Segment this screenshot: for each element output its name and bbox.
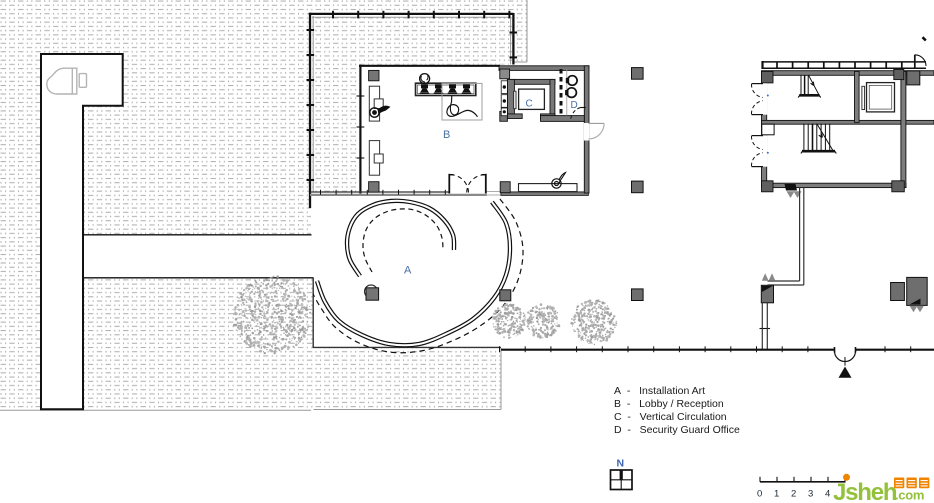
svg-text:A: A	[404, 265, 412, 277]
svg-text:D - Security Guard Office: D - Security Guard Office	[614, 424, 740, 436]
svg-text:4: 4	[825, 489, 830, 500]
svg-text:1: 1	[774, 489, 779, 500]
svg-text:0: 0	[757, 489, 762, 500]
svg-text:B - Lobby / Reception: B - Lobby / Reception	[614, 398, 724, 410]
svg-text:B: B	[443, 129, 450, 141]
svg-text:D: D	[571, 100, 578, 111]
svg-text:2: 2	[791, 489, 796, 500]
svg-text:3: 3	[808, 489, 813, 500]
svg-text:N: N	[617, 458, 625, 470]
svg-text:A - Installation Art: A - Installation Art	[614, 385, 705, 397]
svg-text:C - Vertical Circulation: C - Vertical Circulation	[614, 411, 727, 423]
svg-text:C: C	[526, 99, 533, 110]
svg-text:Jsheh: Jsheh	[833, 479, 897, 503]
svg-text:.com: .com	[895, 488, 924, 503]
